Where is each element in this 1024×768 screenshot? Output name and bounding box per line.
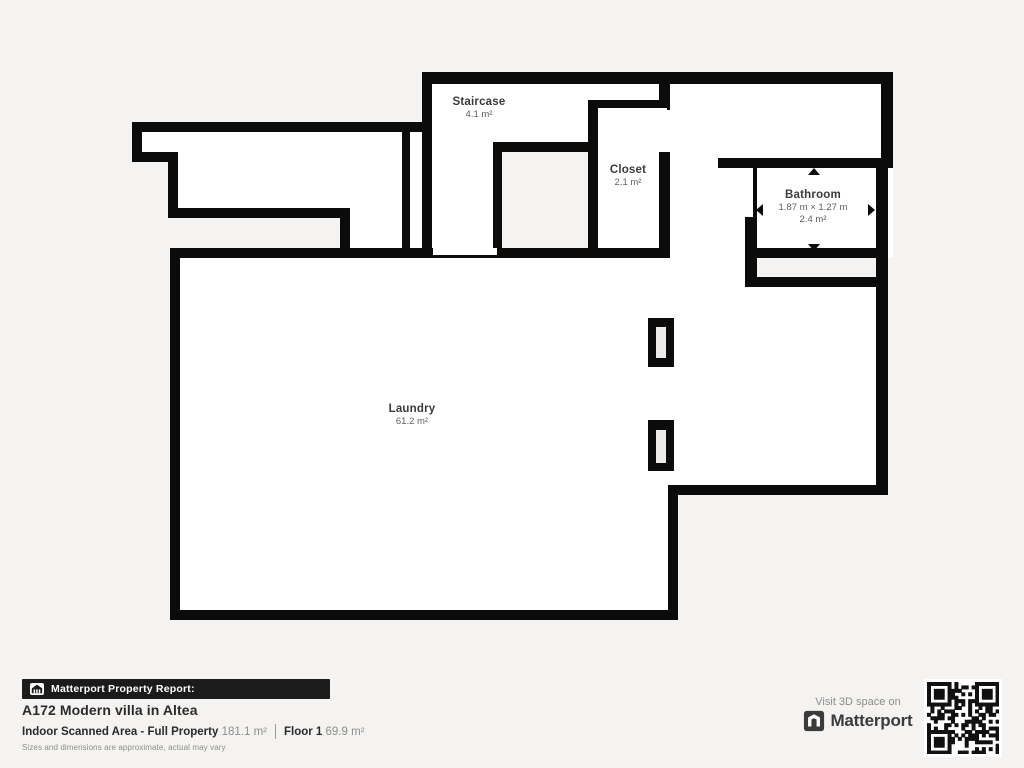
area-info-row: Indoor Scanned Area - Full Property 181.… xyxy=(22,724,365,739)
qr-code[interactable] xyxy=(924,679,1002,757)
matterport-floorplan-page: Staircase 4.1 m² Closet 2.1 m² Bathroom … xyxy=(0,0,1024,768)
staircase-door-opening xyxy=(433,248,497,255)
matterport-logo-icon xyxy=(803,710,825,732)
matterport-link[interactable]: Matterport xyxy=(793,710,923,732)
closet-door-opening xyxy=(659,108,667,152)
report-badge-label: Matterport Property Report: xyxy=(51,683,195,695)
matterport-wordmark: Matterport xyxy=(830,711,912,731)
scanned-area-label: Indoor Scanned Area - Full Property xyxy=(22,726,218,738)
visit-3d-label: Visit 3D space on xyxy=(793,696,923,708)
floor-value: 69.9 m² xyxy=(326,726,365,738)
bathroom-door-opening xyxy=(745,168,753,217)
property-title: A172 Modern villa in Altea xyxy=(22,702,198,718)
property-house-icon xyxy=(30,683,44,695)
divider xyxy=(275,724,276,739)
disclaimer-text: Sizes and dimensions are approximate, ac… xyxy=(22,743,226,752)
floorplan-drawing xyxy=(0,0,1024,768)
qr-code-image xyxy=(927,682,999,754)
floor-label: Floor 1 xyxy=(284,726,322,738)
report-badge: Matterport Property Report: xyxy=(22,679,330,699)
scanned-area-value: 181.1 m² xyxy=(222,726,267,738)
